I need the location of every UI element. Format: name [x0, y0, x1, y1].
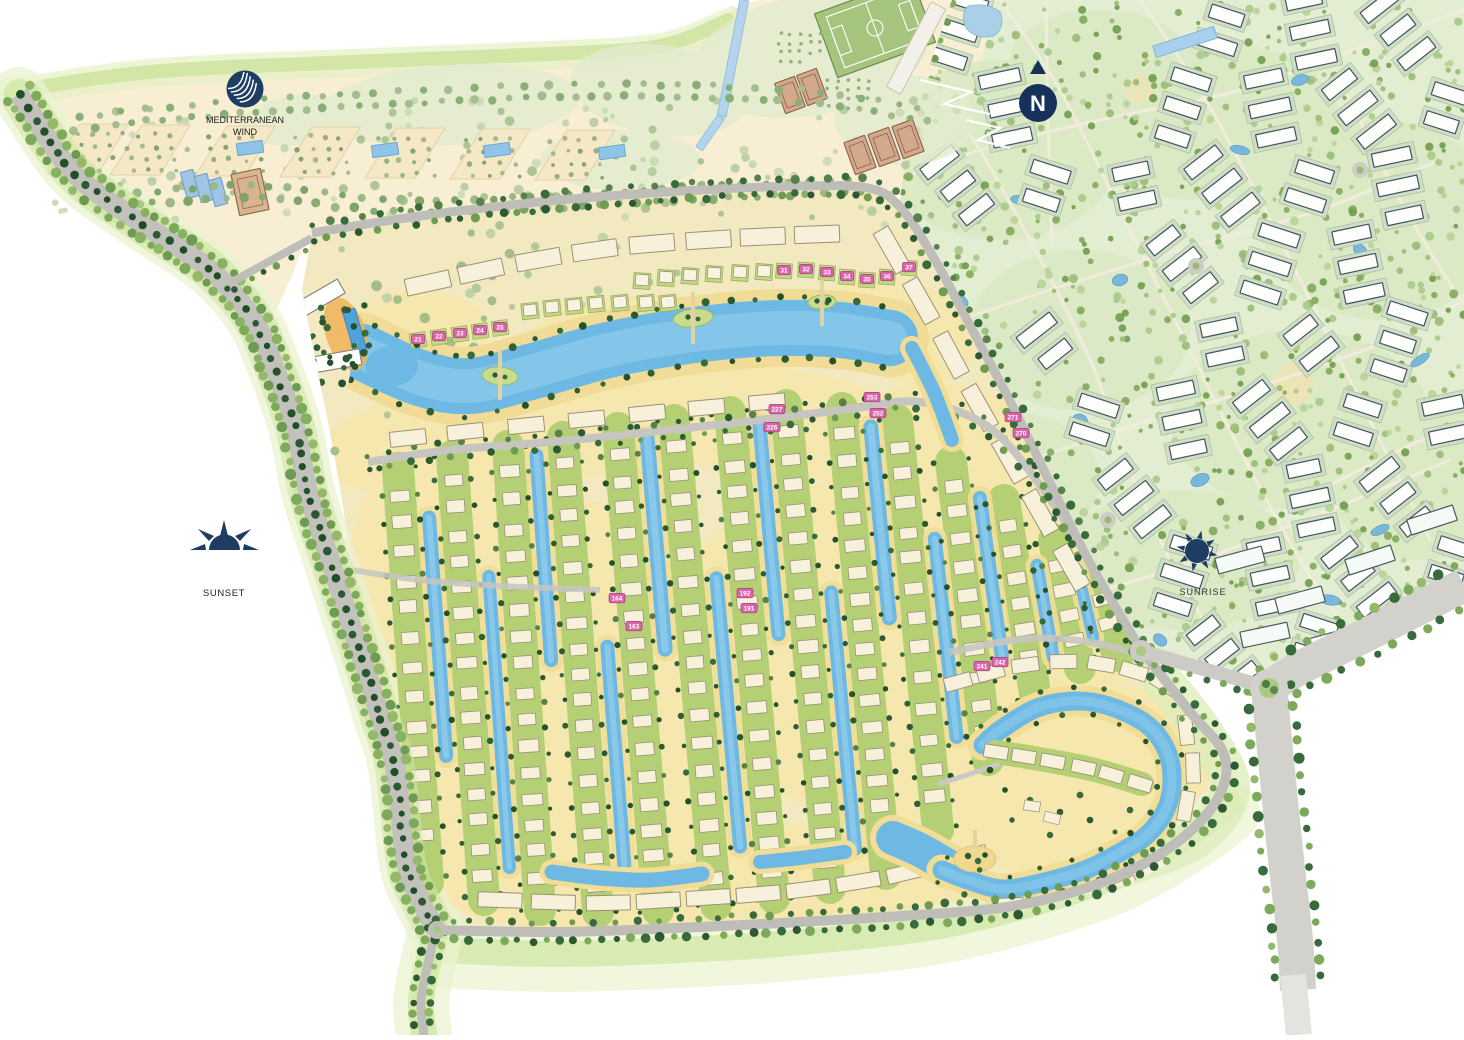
svg-text:33: 33 [823, 270, 831, 277]
svg-text:SUNSET: SUNSET [203, 588, 245, 599]
svg-text:191: 191 [744, 606, 755, 613]
svg-text:252: 252 [873, 411, 884, 418]
svg-text:226: 226 [767, 425, 778, 432]
svg-text:35: 35 [863, 277, 871, 284]
svg-text:21: 21 [414, 337, 422, 344]
svg-text:WIND: WIND [233, 127, 257, 137]
svg-text:32: 32 [802, 267, 810, 274]
svg-text:25: 25 [496, 325, 504, 332]
svg-text:241: 241 [977, 664, 988, 671]
svg-text:24: 24 [476, 328, 484, 335]
svg-text:MEDITERRANEAN: MEDITERRANEAN [206, 115, 284, 125]
svg-text:37: 37 [905, 265, 913, 272]
svg-text:164: 164 [612, 596, 623, 603]
svg-text:242: 242 [995, 660, 1006, 667]
svg-text:163: 163 [629, 624, 640, 631]
svg-text:253: 253 [867, 395, 878, 402]
svg-text:23: 23 [456, 331, 464, 338]
svg-text:36: 36 [883, 274, 891, 281]
svg-text:SUNRISE: SUNRISE [1179, 587, 1226, 597]
svg-text:192: 192 [740, 591, 751, 598]
svg-text:270: 270 [1016, 431, 1027, 438]
svg-text:34: 34 [843, 274, 851, 281]
svg-text:271: 271 [1008, 415, 1019, 422]
svg-text:N: N [1030, 91, 1046, 116]
svg-text:227: 227 [772, 407, 783, 414]
svg-text:31: 31 [780, 268, 788, 275]
svg-text:22: 22 [435, 334, 443, 341]
